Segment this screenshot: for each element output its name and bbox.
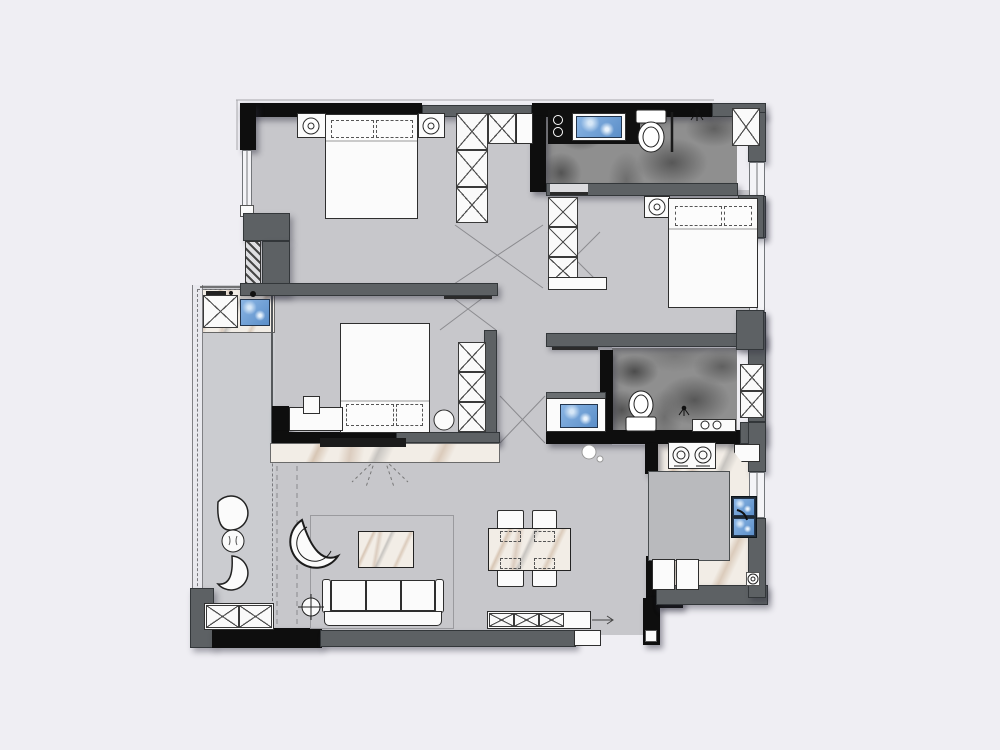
balcony-round-table [222, 530, 244, 552]
bath2-ledge-outlets [701, 421, 721, 429]
kitchen-faucet [737, 510, 747, 520]
bath2-toilet [626, 391, 656, 431]
corner-lounge-chair [290, 520, 338, 568]
balcony-counter-dot [229, 291, 233, 295]
shower-head-icon [691, 109, 703, 121]
floor-plan-canvas [0, 0, 1000, 750]
sideboard-arrow [592, 616, 613, 624]
stove-burners [673, 447, 711, 466]
bath1-toilet [636, 110, 666, 152]
balcony-sink-drain [250, 291, 256, 297]
pendant-light [582, 445, 603, 462]
balcony-fan-chair-1 [218, 496, 248, 530]
kitchen-floor-drain [748, 574, 758, 584]
bath2-drain-icon [679, 406, 689, 416]
symbol-layer [0, 0, 1000, 750]
balcony-fan-chair-2 [218, 556, 248, 590]
bedroom2-stool [434, 410, 454, 430]
floor-lamp [298, 594, 324, 620]
bath1-knobs [554, 116, 563, 137]
table-lamp-icons [303, 118, 665, 215]
